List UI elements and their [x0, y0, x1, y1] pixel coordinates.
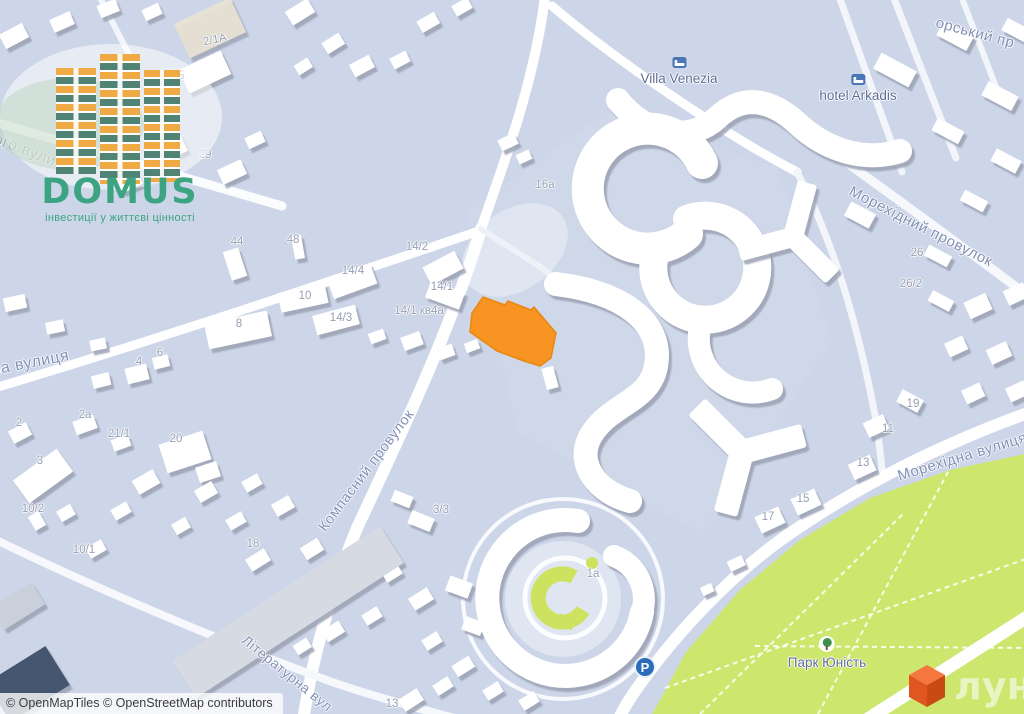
map-canvas[interactable]: { "watermark": { "brand": "DOMUS", "tagl…	[0, 0, 1024, 714]
domus-brand-text: DOMUS	[20, 174, 220, 210]
domus-building-icon	[144, 70, 180, 182]
map-attribution: © OpenMapTiles © OpenStreetMap contribut…	[0, 693, 283, 714]
domus-tagline: інвестиції у життєві цінності	[12, 212, 228, 224]
domus-building-icon	[100, 54, 140, 184]
domus-watermark-logo: DOMUS інвестиції у життєві цінності	[8, 16, 233, 216]
parking-icon[interactable]: P	[634, 656, 656, 678]
lun-brand-text: лун	[954, 664, 1024, 708]
lun-cube-icon	[908, 664, 946, 708]
domus-building-icon	[56, 68, 96, 174]
lun-logo: лун	[908, 664, 1024, 708]
